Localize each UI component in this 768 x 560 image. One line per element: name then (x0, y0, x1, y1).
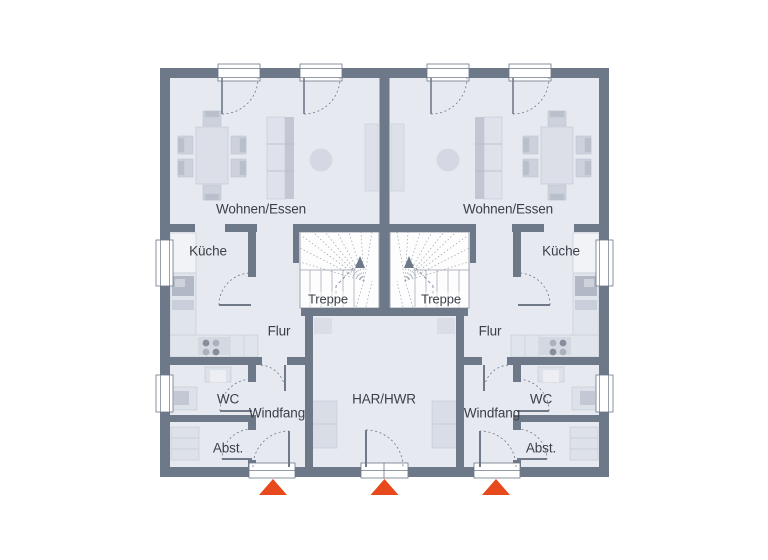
entrance-triangle-icon (371, 479, 399, 495)
room-label-storage-left: Abst. (213, 441, 243, 456)
utility-cabinet (314, 318, 332, 334)
room-label-utility: HAR/HWR (352, 392, 416, 407)
room-label-wc-right: WC (530, 392, 552, 407)
kitchen-window (156, 240, 173, 286)
room-label-storage-right: Abst. (526, 441, 556, 456)
room-label-living-left: Wohnen/Essen (216, 202, 306, 217)
floor-plan-canvas (0, 0, 768, 560)
round-table (310, 149, 333, 172)
wc-window (156, 375, 173, 412)
shelf-unit (267, 117, 294, 199)
right-unit-graphics (384, 64, 613, 495)
storage-shelf (171, 427, 199, 460)
room-label-stairs-right: Treppe (420, 292, 462, 307)
room-label-living-right: Wohnen/Essen (463, 202, 553, 217)
entrance-triangle-icon (259, 479, 287, 495)
left-unit-graphics (156, 64, 385, 495)
room-label-stairs-left: Treppe (307, 292, 349, 307)
stove (198, 337, 230, 355)
room-label-wc-left: WC (217, 392, 239, 407)
room-label-hall-left: Flur (268, 324, 291, 339)
room-label-vestibule-left: Windfang (249, 406, 305, 421)
room-label-kitchen-left: Küche (189, 244, 227, 259)
room-label-hall-right: Flur (479, 324, 502, 339)
sideboard (365, 124, 378, 191)
room-label-kitchen-right: Küche (542, 244, 580, 259)
utility-appliance (309, 401, 337, 448)
room-label-vestibule-right: Windfang (464, 406, 520, 421)
floor-plan: Wohnen/Essen Wohnen/Essen Küche Küche Tr… (0, 0, 768, 560)
